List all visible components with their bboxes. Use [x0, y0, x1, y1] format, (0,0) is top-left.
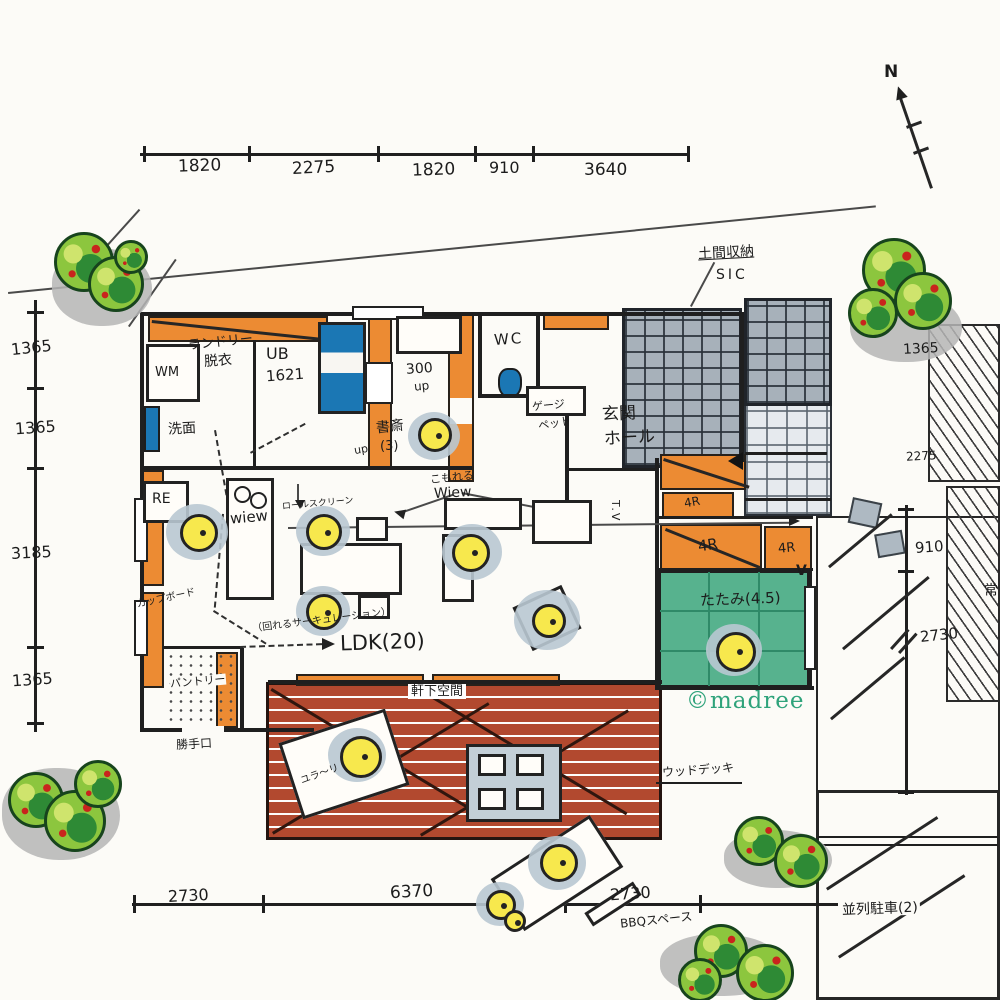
wall-right-upper [740, 312, 744, 462]
porch-step-line [745, 452, 827, 455]
dim-tick [27, 722, 44, 725]
stepping-stone [874, 530, 906, 558]
dim-label: 2730 [168, 887, 210, 905]
dining-chair [306, 514, 342, 550]
dim-line-left [34, 300, 37, 732]
refrigerator-label: RE [152, 492, 171, 506]
dim-label: 1820 [412, 161, 456, 179]
dim-tick [699, 895, 702, 913]
dim-tick [27, 467, 44, 470]
dim-label: 1820 [178, 157, 222, 175]
dim-label: 1365 [11, 671, 53, 690]
dim-label: 1365 [10, 338, 52, 358]
bbq-label: BBQスペース [620, 910, 693, 930]
wood-deck-underline [656, 782, 742, 784]
dim-label: 3640 [584, 162, 627, 179]
tv-label: T.V [610, 500, 621, 522]
dim-line-right [905, 505, 908, 795]
dim-label: 1365 [903, 341, 939, 357]
porch-brick [744, 298, 832, 406]
kitchen-view-label: wiew [229, 508, 268, 526]
dim-label: 3185 [11, 544, 53, 562]
dim-label: 6370 [390, 883, 434, 902]
wall-wc-left [478, 314, 482, 398]
washroom-label: 洗面 [168, 421, 197, 436]
dim-tick [27, 387, 44, 390]
stair-rise-label: 300 [406, 361, 434, 377]
ottoman-chair [532, 604, 566, 638]
dim-tick [27, 311, 44, 314]
living-chair [452, 534, 490, 572]
tatami-grid [660, 610, 808, 612]
floor-plan-canvas: N 1820 2275 1820 910 3640 1365 1365 3185… [0, 0, 1000, 1000]
wc-label: WC [494, 331, 524, 348]
bath-size-label: 1621 [266, 367, 305, 385]
doma-storage-label: 土間収納 [698, 245, 755, 262]
kitchen-chair [180, 514, 218, 552]
circulation-dash-arrow [240, 643, 322, 648]
right-arrowhead-icon [789, 516, 800, 526]
tv-board [532, 500, 592, 544]
closet-label-1: 4R [683, 495, 701, 510]
view-note-label-2: Wiew [434, 485, 472, 501]
dim-tick [898, 508, 914, 511]
bathtub [318, 322, 366, 414]
porch-step-line [745, 498, 831, 501]
cage-label: ゲージ [532, 399, 566, 413]
wall-mid-horizontal [142, 466, 472, 470]
deck-seat [478, 754, 506, 776]
tatami-grid [708, 572, 710, 686]
dim-label: 2730 [919, 626, 959, 645]
tree [114, 240, 148, 274]
dim-tick [27, 646, 44, 649]
wall-closet-bottom [657, 568, 813, 571]
tree [894, 272, 952, 330]
dim-line-top [140, 153, 690, 156]
study-label: 書斎 [375, 419, 404, 436]
tatami-chair [716, 632, 756, 672]
dim-tick [687, 146, 690, 162]
entry-door-marker-icon [728, 452, 743, 470]
entrance-label-1: 玄関 [602, 405, 637, 423]
wood-deck-label: ウッドデッキ [662, 762, 735, 779]
rear-parking-area [816, 790, 1000, 1000]
cooktop-burner-icon [234, 486, 251, 503]
dim-tick [898, 570, 914, 573]
dim-tick [143, 146, 146, 162]
dim-label: 1365 [14, 419, 56, 438]
side-table [356, 517, 388, 541]
left-arrowhead-icon [393, 507, 406, 520]
deck-seat [478, 788, 506, 810]
stair-treads [396, 316, 462, 354]
tree [848, 288, 898, 338]
eaves-label: 軒下空間 [408, 684, 466, 699]
closet-label-3: 4R [777, 541, 795, 555]
wall-pantry-east [240, 648, 244, 730]
dim-label: 910 [489, 160, 520, 176]
wall-pantry-north [163, 646, 243, 649]
ldk-label: LDK(20) [340, 631, 425, 655]
bbq-chair-small [504, 910, 526, 932]
right-arrowhead-icon [322, 638, 335, 650]
deck-seat [516, 788, 544, 810]
north-arrowhead-icon [892, 84, 907, 100]
vanity-sink [144, 406, 160, 452]
dim-tick [898, 791, 914, 794]
bath-label: UB [266, 346, 289, 362]
window-ub-east [365, 362, 393, 404]
dim-tick [474, 146, 477, 162]
study-size-label: (3) [380, 440, 398, 453]
wall-bottom-left [140, 728, 314, 732]
bbq-chair [540, 844, 578, 882]
parking-label: 並列駐車(2) [840, 901, 920, 918]
wall-ldk-east [655, 458, 659, 690]
north-arrow-line [900, 98, 933, 189]
lounge-round-chair [340, 736, 382, 778]
dim-label: 2730 [609, 885, 651, 904]
study-chair [418, 418, 452, 452]
hall-step-line [567, 468, 655, 471]
dim-tick [262, 895, 265, 913]
sic-label: SIC [716, 268, 748, 282]
dim-tick [532, 146, 535, 162]
dim-tick [377, 146, 380, 162]
tree [774, 834, 828, 888]
dim-label: 2275 [292, 159, 336, 178]
laundry-label-2: 脱衣 [204, 353, 233, 369]
dim-label: 910 [915, 539, 945, 556]
washing-machine-label: WM [155, 366, 179, 379]
north-label: N [884, 64, 898, 81]
stair-up-label: up [413, 379, 429, 393]
watermark: ©madree [686, 690, 804, 713]
tree [736, 944, 794, 1000]
sic-leader-line [690, 262, 715, 307]
closet-label-2: 4R [697, 537, 719, 555]
dim-label: 2275 [906, 449, 937, 463]
backdoor-label: 勝手口 [176, 737, 213, 751]
dim-tick [248, 146, 251, 162]
parking-side-label: 常 [984, 584, 998, 598]
hall-up-label: up [353, 443, 369, 456]
tree [678, 958, 722, 1000]
entrance-label-2: ホール [604, 429, 656, 449]
deck-seat [516, 754, 544, 776]
tatami-label: たたみ(4.5) [700, 591, 781, 609]
window-tatami-east [804, 586, 816, 670]
circulation-dash [250, 423, 306, 454]
parking-inner-line [818, 844, 998, 846]
v-mark-label: V [796, 564, 807, 578]
view-note-label-1: こもれる [430, 470, 475, 486]
dim-tick [133, 895, 136, 913]
tree [74, 760, 122, 808]
backdoor-gap [182, 726, 224, 734]
